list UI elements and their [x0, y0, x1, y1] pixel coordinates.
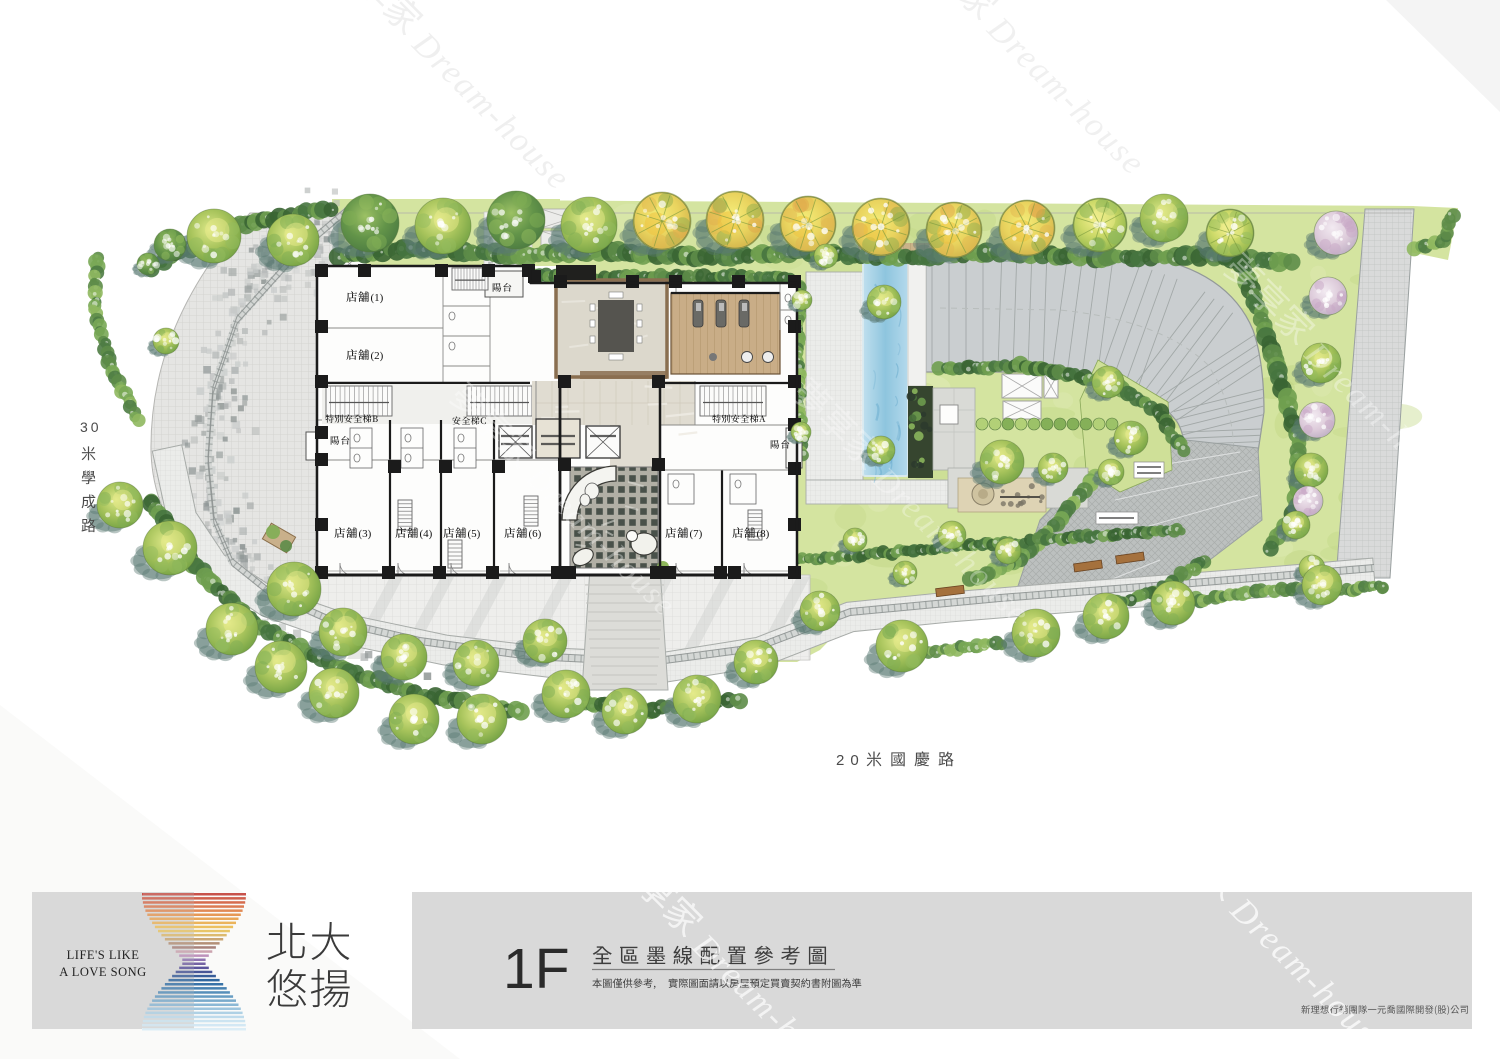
svg-text:(4): (4)	[420, 528, 433, 540]
svg-text:20: 20	[836, 752, 865, 769]
svg-text:1F: 1F	[503, 937, 570, 1001]
svg-text:(6): (6)	[529, 528, 542, 540]
svg-text:A LOVE SONG: A LOVE SONG	[59, 965, 146, 979]
svg-text:(2): (2)	[371, 350, 384, 362]
svg-text:(3): (3)	[359, 528, 372, 540]
svg-text:(7): (7)	[690, 528, 703, 540]
svg-text:30: 30	[80, 419, 102, 435]
svg-text:(1): (1)	[371, 292, 384, 304]
svg-text:(5): (5)	[468, 528, 481, 540]
svg-text:(8): (8)	[757, 528, 770, 540]
svg-text:LIFE'S LIKE: LIFE'S LIKE	[67, 948, 140, 962]
